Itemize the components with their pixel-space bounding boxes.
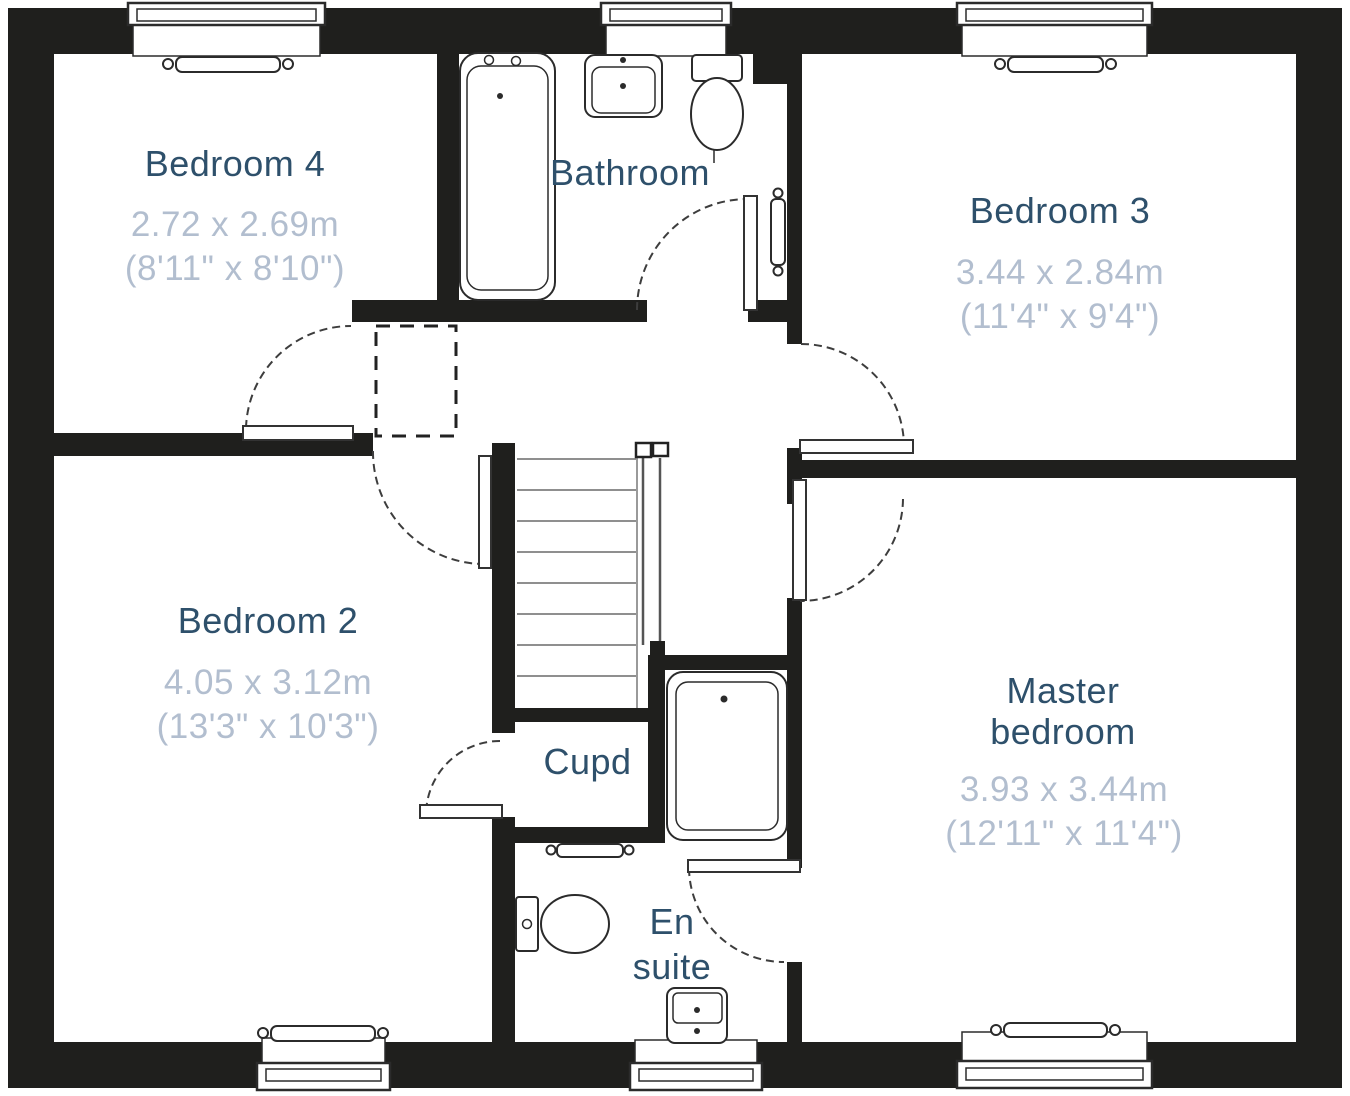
bedroom4-door-leaf [243,426,353,440]
master-bedroom-label: Master bedroom [953,670,1173,752]
bedroom3-dimensions: 3.44 x 2.84m (11'4" x 9'4") [880,251,1240,339]
radiator-ensuite [547,844,634,857]
bedroom4-label: Bedroom 4 [60,143,410,184]
wall-bedroom3-master-divider [787,460,1296,478]
newel-post-top-left [636,443,651,457]
bedroom3-metric: 3.44 x 2.84m [880,251,1240,295]
master-metric: 3.93 x 3.44m [905,768,1223,812]
wall-shower-right [787,655,802,868]
bathroom-toilet [691,55,743,163]
floor-plan: Bedroom 4 2.72 x 2.69m (8'11" x 8'10") B… [0,0,1350,1096]
wall-stairs-left [492,443,515,733]
master-bedroom-dimensions: 3.93 x 3.44m (12'11" x 11'4") [905,768,1223,856]
radiator-bedroom3 [995,57,1116,72]
ensuite-label: En suite [606,899,738,989]
cupboard-label: Cupd [515,741,660,782]
wall-shower-top [658,655,787,670]
wall-bathroom-left [437,54,459,322]
wall-bathroom-bottom-left [459,300,647,322]
bedroom3-imperial: (11'4" x 9'4") [880,295,1240,339]
stair-railing [636,443,668,655]
wall-master-left-stub2 [787,598,802,660]
shower [667,672,787,840]
bedroom4-dimensions: 2.72 x 2.69m (8'11" x 8'10") [60,203,410,291]
staircase [517,443,668,708]
ensuite-door-leaf [688,860,800,872]
wall-ensuite-right-stub [787,962,802,1042]
bedroom3-label: Bedroom 3 [880,190,1240,231]
wall-cupboard-bottom [492,827,665,843]
bedroom2-door-leaf [479,456,491,568]
loft-hatch [376,326,456,436]
window-bathroom [601,3,731,56]
stair-steps [517,455,637,708]
master-door-leaf [793,480,806,600]
window-master [957,1032,1152,1088]
exterior-wall-left [8,8,54,1088]
wall-bathroom-right-notch [753,54,802,84]
bedroom4-door-arc [246,326,351,428]
bedroom2-imperial: (13'3" x 10'3") [93,705,443,749]
wall-bedroom3-left [787,84,802,344]
bedroom4-imperial: (8'11" x 8'10") [60,247,410,291]
bathroom-label: Bathroom [490,152,770,193]
bedroom4-metric: 2.72 x 2.69m [60,203,410,247]
cupboard-door-leaf [420,805,502,818]
master-door-arc [800,499,903,601]
radiator-bathroom [771,189,785,276]
bedroom2-dimensions: 4.05 x 3.12m (13'3" x 10'3") [93,661,443,749]
ensuite-sink [667,988,727,1043]
bedroom3-door-arc [801,344,904,446]
radiator-bedroom2 [258,1026,388,1041]
cupboard-door-arc [426,741,500,814]
master-imperial: (12'11" x 11'4") [905,812,1223,856]
wall-ensuite-left [492,817,515,1042]
newel-post-bottom [650,641,665,655]
window-bedroom4 [128,3,325,56]
window-bedroom3 [957,3,1152,56]
bedroom2-label: Bedroom 2 [93,600,443,641]
wall-cupboard-top [492,708,665,722]
ensuite-toilet [516,895,609,953]
exterior-wall-right [1296,8,1342,1088]
window-bedroom2 [257,1038,390,1090]
bedroom2-door-arc [373,451,481,564]
window-ensuite [630,1040,762,1090]
radiator-master [991,1023,1120,1037]
newel-post-top-right [653,443,668,456]
bathroom-door-arc [637,199,748,310]
bathroom-sink [585,55,662,117]
bedroom3-door-leaf [800,440,913,453]
radiator-bedroom4 [163,57,293,72]
bedroom2-metric: 4.05 x 3.12m [93,661,443,705]
bathroom-door-leaf [744,196,757,310]
wall-landing-top-left [352,300,459,322]
